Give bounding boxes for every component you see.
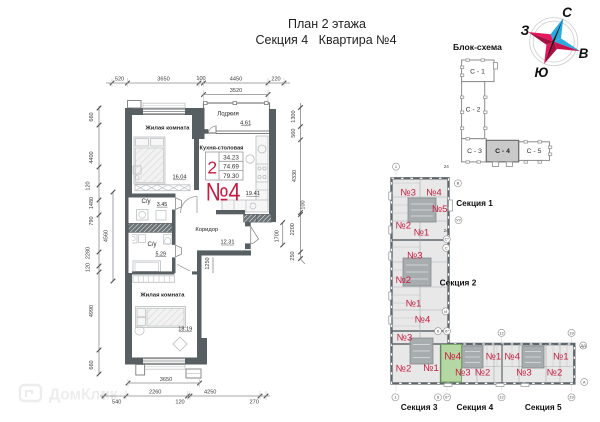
svg-text:С*: С* [445, 237, 450, 242]
svg-text:И: И [444, 309, 447, 314]
svg-text:12: 12 [499, 330, 503, 335]
svg-text:С - 2: С - 2 [466, 107, 481, 114]
svg-text:№5: №5 [432, 204, 448, 215]
svg-text:№4: №4 [415, 315, 431, 326]
svg-text:12: 12 [499, 395, 503, 400]
svg-text:3650: 3650 [160, 377, 172, 383]
svg-text:560: 560 [291, 129, 297, 138]
svg-text:660: 660 [89, 360, 95, 369]
svg-text:С - 3: С - 3 [467, 148, 482, 155]
svg-text:№4: №4 [426, 187, 442, 198]
svg-text:С/у: С/у [148, 242, 157, 248]
svg-text:С - 4: С - 4 [495, 148, 510, 155]
svg-text:ДомКлик: ДомКлик [49, 387, 118, 404]
svg-text:6: 6 [437, 395, 439, 400]
svg-text:220: 220 [271, 77, 280, 83]
svg-text:№2: №2 [547, 368, 563, 379]
svg-text:З: З [521, 23, 530, 38]
svg-text:1480: 1480 [89, 197, 95, 209]
svg-text:120: 120 [86, 263, 92, 272]
svg-text:2200: 2200 [290, 223, 296, 235]
svg-text:В: В [579, 46, 589, 61]
svg-text:Жилая комната: Жилая комната [139, 293, 185, 299]
svg-text:Секция 5: Секция 5 [525, 402, 562, 412]
svg-text:4450: 4450 [230, 77, 242, 83]
svg-text:74.69: 74.69 [223, 164, 239, 171]
svg-text:3650: 3650 [157, 77, 169, 83]
svg-text:1300: 1300 [291, 110, 297, 122]
svg-text:Секция 4: Секция 4 [457, 402, 494, 412]
svg-text:№3: №3 [407, 250, 423, 261]
svg-text:100: 100 [301, 200, 307, 209]
svg-text:1250: 1250 [205, 257, 211, 269]
svg-text:№3: №3 [455, 368, 471, 379]
svg-text:4250: 4250 [204, 390, 216, 396]
svg-text:С: С [562, 5, 572, 20]
svg-text:1: 1 [395, 164, 397, 169]
svg-text:120: 120 [175, 400, 184, 406]
svg-text:С/у: С/у [142, 199, 151, 205]
svg-text:100: 100 [196, 76, 205, 82]
svg-text:№1: №1 [486, 352, 502, 363]
svg-text:В: В [457, 181, 460, 186]
svg-text:1: 1 [394, 395, 396, 400]
svg-text:№4: №4 [504, 352, 520, 363]
svg-text:Кухня-столовая: Кухня-столовая [200, 146, 244, 152]
svg-text:3520: 3520 [230, 88, 242, 94]
svg-text:19: 19 [569, 395, 573, 400]
svg-text:790: 790 [89, 216, 95, 225]
svg-text:2280: 2280 [86, 247, 92, 259]
svg-text:6*: 6* [445, 395, 449, 400]
svg-text:№1: №1 [423, 363, 439, 374]
svg-text:270: 270 [250, 400, 259, 406]
svg-text:Ю: Ю [534, 65, 548, 80]
svg-text:Коридор: Коридор [195, 227, 218, 233]
svg-text:№3: №3 [397, 333, 413, 344]
svg-text:№1: №1 [553, 352, 569, 363]
svg-text:Лоджия: Лоджия [217, 111, 239, 118]
svg-text:6: 6 [437, 329, 439, 334]
svg-text:19: 19 [569, 330, 573, 335]
svg-text:№2: №2 [396, 364, 412, 375]
svg-text:520: 520 [115, 77, 124, 83]
svg-text:Блок-схема: Блок-схема [453, 42, 502, 52]
svg-text:1700: 1700 [275, 230, 281, 242]
svg-text:660: 660 [89, 112, 95, 121]
svg-text:120: 120 [86, 181, 92, 190]
svg-text:№1: №1 [414, 227, 430, 238]
svg-text:34.23: 34.23 [223, 154, 239, 161]
svg-text:24: 24 [444, 228, 450, 233]
svg-text:6*: 6* [445, 329, 449, 334]
svg-text:План 2 этажа: План 2 этажа [288, 17, 366, 31]
svg-text:№3: №3 [516, 368, 532, 379]
svg-text:УУ: УУ [456, 218, 461, 223]
svg-text:№3: №3 [400, 187, 416, 198]
svg-text:Жилая комната: Жилая комната [144, 126, 190, 132]
svg-text:4990: 4990 [89, 305, 95, 317]
svg-text:4560: 4560 [104, 230, 110, 242]
svg-text:4330: 4330 [292, 170, 298, 182]
svg-text:ДД: ДД [581, 343, 587, 348]
svg-text:2: 2 [207, 158, 217, 178]
svg-text:4400: 4400 [89, 151, 95, 163]
svg-text:540: 540 [112, 400, 121, 406]
svg-text:№2: №2 [395, 275, 411, 286]
svg-text:№4: №4 [206, 178, 241, 206]
svg-text:А: А [583, 379, 586, 384]
svg-text:С: С [445, 245, 448, 250]
svg-text:№2: №2 [475, 368, 491, 379]
svg-text:2260: 2260 [149, 390, 161, 396]
svg-text:Секция 3: Секция 3 [401, 402, 438, 412]
svg-text:250: 250 [290, 251, 296, 260]
svg-text:С - 1: С - 1 [470, 69, 485, 76]
svg-text:С - 5: С - 5 [527, 148, 542, 155]
svg-text:№1: №1 [406, 299, 422, 310]
svg-text:Секция 4 Квартира №4: Секция 4 Квартира №4 [255, 33, 396, 47]
svg-text:№2: №2 [395, 221, 411, 232]
svg-text:Секция 1: Секция 1 [456, 198, 493, 208]
svg-text:24: 24 [444, 164, 450, 169]
svg-text:№4: №4 [444, 351, 461, 363]
svg-text:Секция 2: Секция 2 [440, 278, 477, 288]
